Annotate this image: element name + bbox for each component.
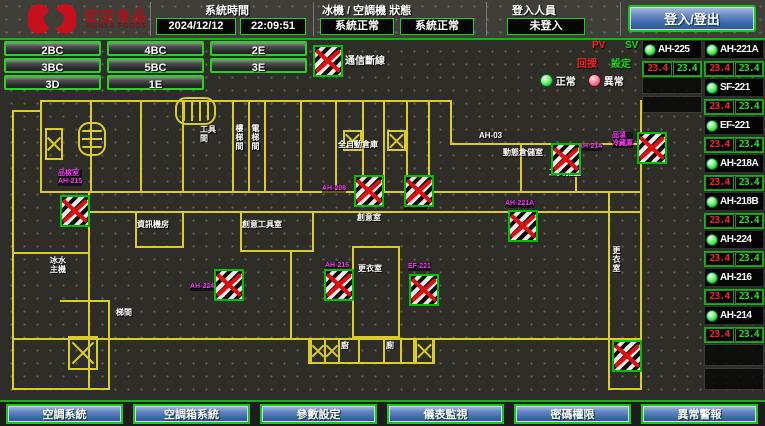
unit-ah-221a[interactable]: AH-221A 23.423.4 — [704, 40, 764, 77]
empty-slot — [704, 368, 764, 390]
header-bar: 宏亞食品 HUNYA FOODS 系統時間 2024/12/12 22:09:5… — [0, 0, 765, 40]
abnormal-led-icon — [588, 74, 601, 87]
status-led — [706, 120, 718, 132]
stair-x-icon — [387, 130, 406, 151]
wall — [383, 338, 385, 364]
equipment-tag: AH-214 — [578, 143, 602, 151]
nav-password-rights[interactable]: 密碼權限 — [514, 404, 631, 424]
stairwell-icon — [175, 97, 216, 125]
unit-ah-218a[interactable]: AH-218A 23.423.4 — [704, 154, 764, 191]
status-led — [706, 196, 718, 208]
comm-lost-marker[interactable] — [354, 175, 384, 207]
comm-lost-marker[interactable] — [214, 269, 244, 301]
wall — [182, 211, 184, 248]
stair-x-icon — [68, 336, 98, 370]
login-logout-button[interactable]: 登入/登出 — [628, 5, 756, 32]
wall — [108, 300, 110, 390]
comm-lost-marker[interactable] — [409, 274, 439, 306]
abnormal-legend: 異常 — [588, 73, 624, 88]
comm-lost-legend-icon — [313, 45, 343, 77]
comm-lost-marker[interactable] — [404, 175, 434, 207]
status-led — [644, 44, 656, 56]
room-label: 資訊機房 — [137, 220, 169, 229]
pv-readout: 23.4 — [643, 62, 672, 76]
comm-lost-marker[interactable] — [551, 143, 581, 175]
wall — [40, 100, 42, 193]
floor-button-2e[interactable]: 2E — [210, 41, 307, 56]
status-led — [706, 310, 718, 322]
room-label: 工具間 — [200, 125, 216, 143]
system-date-value: 2024/12/12 — [156, 18, 236, 35]
sv-desc-legend: 設定 — [611, 55, 631, 70]
comm-lost-marker[interactable] — [637, 132, 667, 164]
comm-lost-legend-label: 通信斷線 — [345, 52, 385, 67]
status-led — [706, 272, 718, 284]
equipment-tag: AH-208 — [322, 185, 346, 193]
wall — [450, 100, 452, 145]
wall — [352, 246, 400, 248]
unit-ah-225[interactable]: AH-225 23.423.4 — [642, 40, 702, 77]
floor-button-3d[interactable]: 3D — [4, 75, 101, 90]
room-label: 更衣室 — [358, 264, 382, 273]
nav-ahu-system[interactable]: 空調箱系統 — [133, 404, 250, 424]
wall — [232, 100, 234, 191]
pv-readout: 23.4 — [705, 62, 734, 76]
equipment-tag: AH-221A — [505, 200, 534, 208]
wall — [312, 211, 314, 252]
sv-readout: 23.4 — [735, 328, 764, 342]
room-label: 廁 — [386, 341, 394, 350]
wall — [335, 100, 337, 191]
wall — [60, 338, 640, 340]
room-label: 梯間 — [116, 308, 132, 317]
room-label: AH-03 — [479, 131, 502, 140]
floor-button-1e[interactable]: 1E — [107, 75, 204, 90]
stair-x-icon — [45, 128, 63, 160]
floor-button-2bc[interactable]: 2BC — [4, 41, 101, 56]
normal-legend: 正常 — [540, 73, 576, 88]
brand-subtitle: HUNYA FOODS — [86, 23, 148, 30]
wall — [264, 100, 266, 191]
stair-x-icon — [415, 338, 434, 364]
hmi-screen: 宏亞食品 HUNYA FOODS 系統時間 2024/12/12 22:09:5… — [0, 0, 765, 426]
wall — [248, 100, 250, 191]
wall — [240, 211, 242, 252]
wall — [60, 300, 110, 302]
wall — [12, 110, 42, 112]
sv-readout: 23.4 — [673, 62, 702, 76]
unit-ah-224[interactable]: AH-224 23.423.4 — [704, 230, 764, 267]
status-led — [706, 44, 718, 56]
equipment-tag: 品溫冷藏庫 — [612, 132, 633, 148]
nav-meter-monitor[interactable]: 儀表監視 — [387, 404, 504, 424]
pv-desc-legend: 回授 — [577, 55, 597, 70]
machine-status-label: 冰機 / 空調機 狀態 — [322, 2, 411, 18]
floor-button-3e[interactable]: 3E — [210, 58, 307, 73]
wall — [398, 246, 400, 338]
room-label: 創意室 — [357, 213, 381, 222]
wall — [40, 100, 452, 102]
bottom-nav-bar: 空調系統 空調箱系統 參數設定 儀表監視 密碼權限 異常警報 — [0, 400, 765, 426]
wall — [135, 246, 184, 248]
equipment-tag: AH-224 — [190, 283, 214, 291]
system-time-label: 系統時間 — [205, 2, 249, 18]
wall — [300, 100, 302, 191]
pv-readout: 23.4 — [705, 100, 734, 114]
sv-readout: 23.4 — [735, 100, 764, 114]
room-label: 更衣室 — [612, 246, 621, 273]
unit-sf-221[interactable]: SF-221 23.423.4 — [704, 78, 764, 115]
hunya-logo-icon — [28, 4, 80, 34]
room-label: 電梯間 — [251, 124, 260, 151]
equipment-tag: EF-221 — [408, 263, 431, 271]
login-user-value: 未登入 — [507, 18, 585, 35]
empty-slot — [642, 96, 702, 113]
sv-readout: 23.4 — [735, 138, 764, 152]
wall — [240, 250, 314, 252]
floor-button-3bc[interactable]: 3BC — [4, 58, 101, 73]
room-label: 動態倉儲室 — [503, 148, 543, 157]
nav-hvac-system[interactable]: 空調系統 — [6, 404, 123, 424]
sv-legend: SV — [625, 40, 638, 51]
wall — [140, 100, 142, 191]
pv-legend: PV — [592, 40, 605, 51]
pv-readout: 23.4 — [705, 138, 734, 152]
equipment-tag: 品檢室AH-215 — [58, 170, 82, 186]
nav-alarm[interactable]: 異常警報 — [641, 404, 758, 424]
system-time-value: 22:09:51 — [240, 18, 306, 35]
floor-button-5bc[interactable]: 5BC — [107, 58, 204, 73]
wall — [608, 193, 610, 390]
wall — [12, 388, 110, 390]
unit-ah-214[interactable]: AH-214 23.423.4 — [704, 306, 764, 343]
sv-readout: 23.4 — [735, 62, 764, 76]
floor-button-4bc[interactable]: 4BC — [107, 41, 204, 56]
wall — [358, 338, 360, 364]
stair-x-icon — [324, 338, 340, 364]
status-led — [706, 234, 718, 246]
room-label: 全自動倉庫 — [338, 140, 378, 149]
comm-lost-marker[interactable] — [324, 269, 354, 301]
unit-ef-221[interactable]: EF-221 23.423.4 — [704, 116, 764, 153]
room-label: 樓梯間 — [235, 124, 244, 151]
pv-readout: 23.4 — [705, 214, 734, 228]
sv-readout: 23.4 — [735, 214, 764, 228]
login-user-label: 登入人員 — [512, 2, 556, 18]
pv-readout: 23.4 — [705, 290, 734, 304]
comm-lost-marker[interactable] — [508, 210, 538, 242]
comm-lost-marker[interactable] — [60, 195, 90, 227]
sv-readout: 23.4 — [735, 252, 764, 266]
status-led — [706, 158, 718, 170]
stairwell-icon — [78, 122, 106, 156]
room-label: 廚 — [341, 341, 349, 350]
wall — [290, 250, 292, 340]
sv-readout: 23.4 — [735, 290, 764, 304]
wall — [12, 110, 14, 390]
ahu-status: 系統正常 — [400, 18, 474, 35]
pv-readout: 23.4 — [705, 176, 734, 190]
pv-readout: 23.4 — [705, 328, 734, 342]
wall — [608, 388, 642, 390]
unit-ah-218b[interactable]: AH-218B 23.423.4 — [704, 192, 764, 229]
wall — [12, 252, 88, 254]
pv-readout: 23.4 — [705, 252, 734, 266]
empty-slot — [642, 77, 702, 94]
wall — [135, 211, 137, 248]
nav-parameter-setup[interactable]: 參數設定 — [260, 404, 377, 424]
status-led — [706, 82, 718, 94]
room-label: 創意工具室 — [242, 220, 282, 229]
comm-lost-marker[interactable] — [612, 340, 642, 372]
unit-ah-216[interactable]: AH-216 23.423.4 — [704, 268, 764, 305]
empty-slot — [704, 344, 764, 366]
wall — [400, 338, 402, 364]
chiller-status: 系統正常 — [320, 18, 394, 35]
normal-led-icon — [540, 74, 553, 87]
sv-readout: 23.4 — [735, 176, 764, 190]
room-label: 冰水主機 — [50, 256, 66, 274]
